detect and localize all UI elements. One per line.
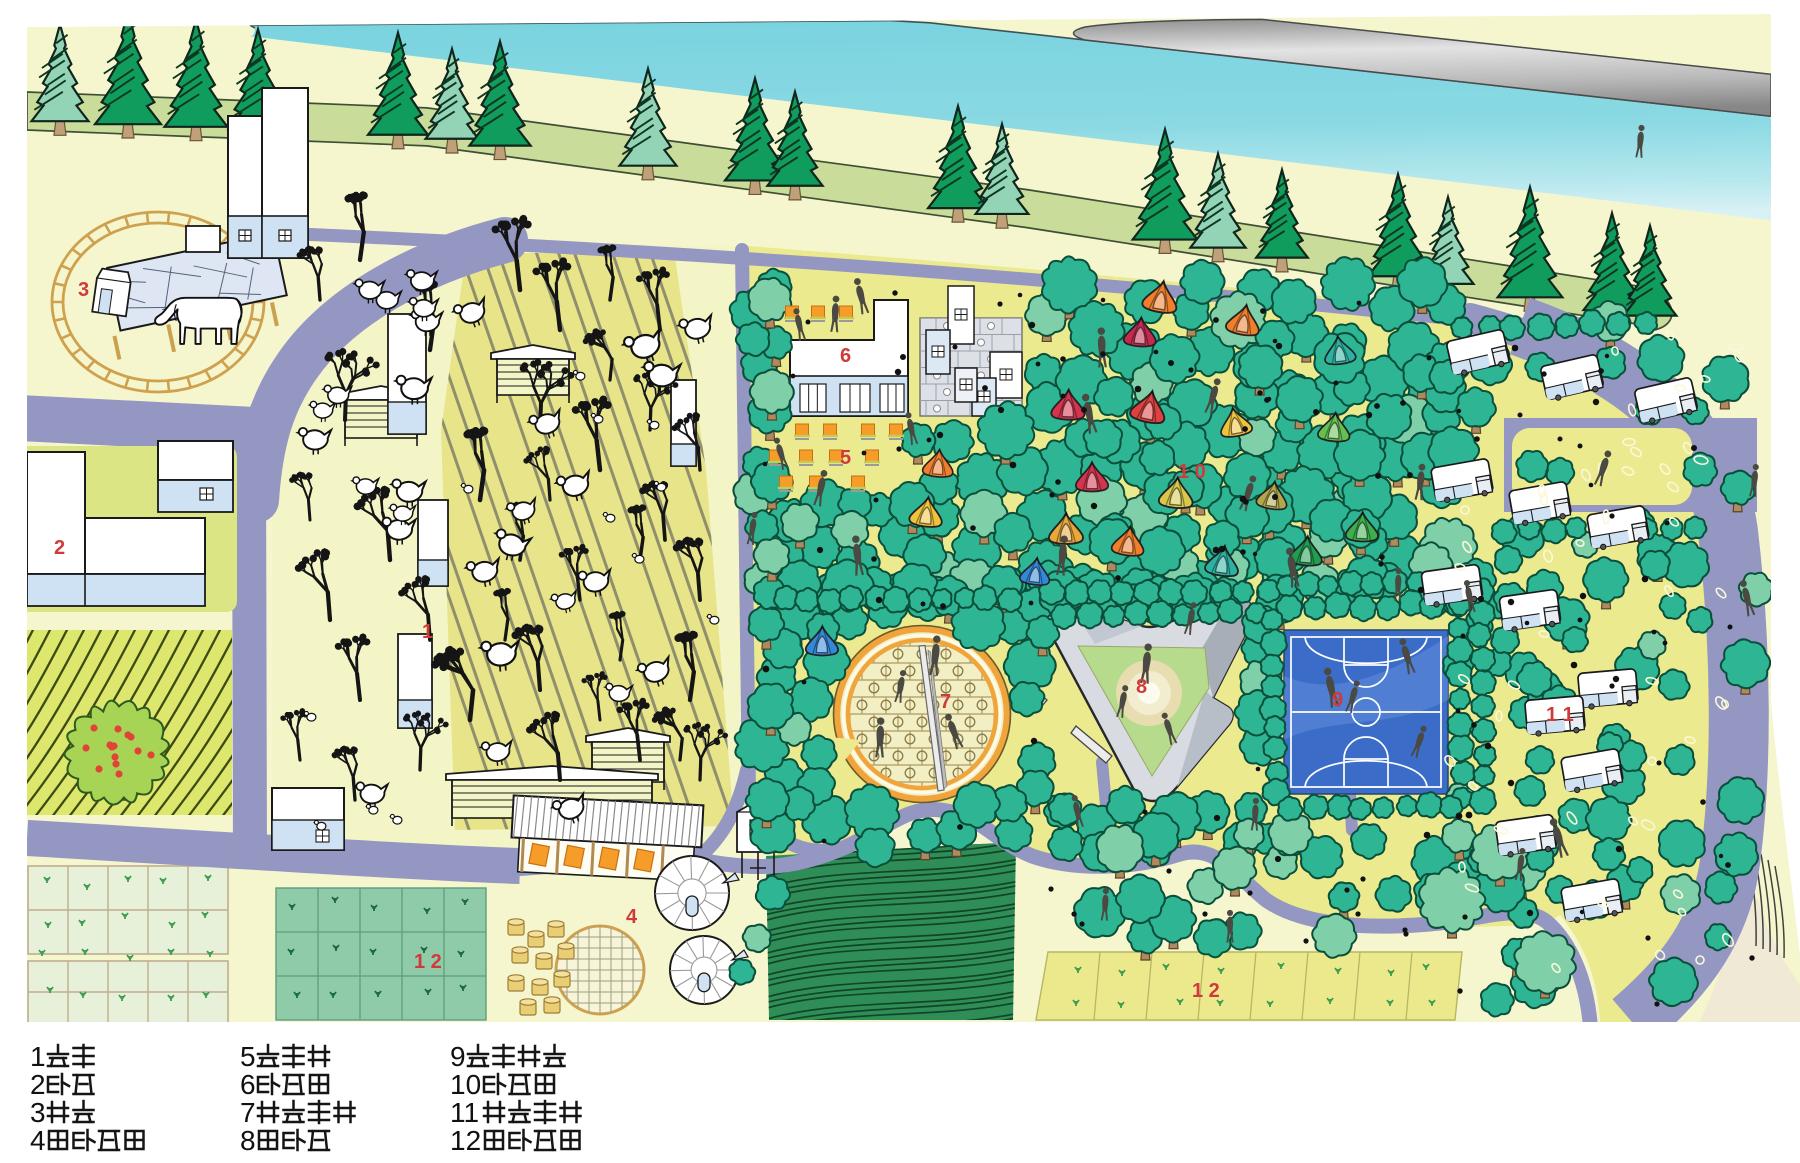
svg-text:11: 11 <box>450 1097 479 1128</box>
svg-text:9: 9 <box>450 1041 466 1072</box>
svg-text:4: 4 <box>626 906 638 928</box>
svg-text:8: 8 <box>240 1125 256 1156</box>
svg-text:7: 7 <box>940 691 951 713</box>
svg-text:10: 10 <box>450 1069 481 1100</box>
svg-text:1 0: 1 0 <box>1178 461 1206 483</box>
svg-text:2: 2 <box>30 1069 46 1100</box>
svg-text:3: 3 <box>78 279 89 301</box>
svg-text:1: 1 <box>422 621 433 643</box>
svg-text:2: 2 <box>54 537 65 559</box>
svg-text:4: 4 <box>30 1125 46 1156</box>
svg-text:1 2: 1 2 <box>414 951 442 973</box>
svg-text:1: 1 <box>30 1041 46 1072</box>
svg-text:3: 3 <box>30 1097 46 1128</box>
svg-text:6: 6 <box>840 345 851 367</box>
svg-text:5: 5 <box>240 1041 256 1072</box>
svg-text:1 2: 1 2 <box>1192 980 1220 1002</box>
svg-text:7: 7 <box>240 1097 256 1128</box>
svg-text:12: 12 <box>450 1125 481 1156</box>
svg-text:8: 8 <box>1136 676 1147 698</box>
svg-text:5: 5 <box>840 447 851 469</box>
svg-text:1 1: 1 1 <box>1546 704 1574 726</box>
svg-text:6: 6 <box>240 1069 256 1100</box>
svg-text:9: 9 <box>1332 689 1343 711</box>
